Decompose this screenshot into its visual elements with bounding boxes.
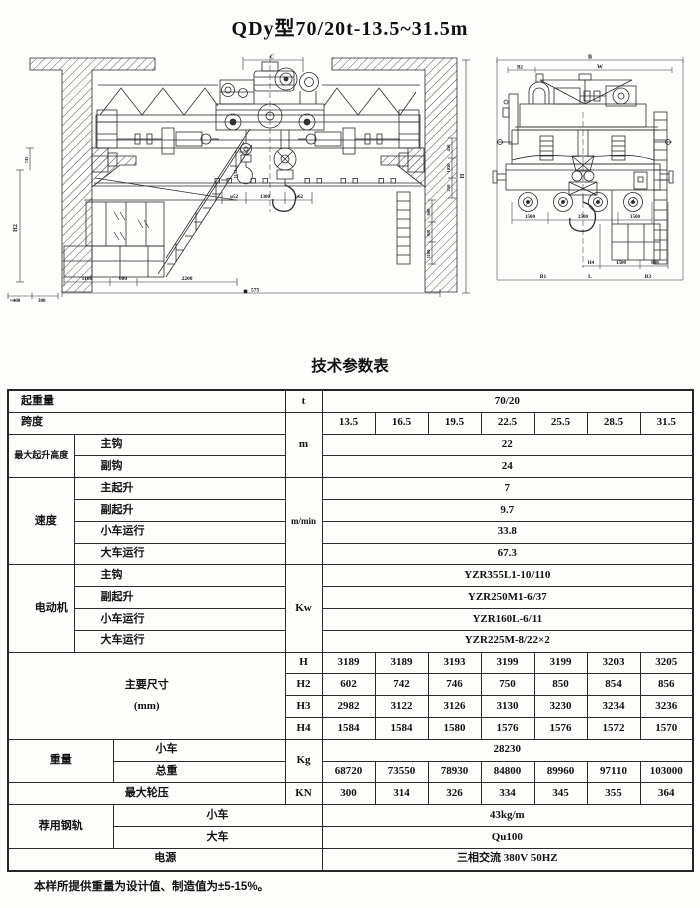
technical-drawing: C 1134 φ52 1300 φ62 1100 600 2200 575 ≈4…: [0, 52, 700, 304]
wheel-load-value: 334: [481, 783, 534, 805]
dim-value: 1576: [534, 717, 587, 739]
span-value: 22.5: [481, 412, 534, 434]
row-label-rail: 荐用钢轨: [8, 805, 113, 849]
dim-row-h3: H3: [285, 696, 322, 718]
sub-label-trolley-travel: 小车运行: [74, 521, 285, 543]
dim-label-2200: 2200: [182, 276, 193, 282]
weight-value: 97110: [587, 761, 640, 783]
value-rail-trolley: 43kg/m: [322, 805, 693, 827]
row-label-motor: 电动机: [8, 565, 74, 652]
row-label-dimensions: 主要尺寸 (mm): [8, 652, 285, 739]
side-trolley: [503, 74, 658, 144]
dim-label-h2: H2: [13, 224, 19, 232]
unit-kw: Kw: [285, 565, 322, 652]
wall-ladder: [397, 192, 410, 264]
dim-value: 850: [534, 674, 587, 696]
sub-label-rail-trolley: 小车: [113, 805, 322, 827]
dim-label-b2: B2: [517, 66, 523, 71]
document-page: QDy型70/20t-13.5~31.5m: [0, 0, 700, 908]
side-dimensions: [497, 57, 683, 280]
dim-value: 1576: [481, 717, 534, 739]
dim-value: 602: [322, 674, 375, 696]
value-speed-main: 7: [322, 478, 693, 500]
dim-value: 1580: [428, 717, 481, 739]
aux-hook: [238, 130, 253, 184]
dim-label-s250: 250: [446, 184, 451, 192]
dim-label-w: W: [597, 65, 603, 71]
dim-value: 1584: [322, 717, 375, 739]
sub-label-motor-main: 主钩: [74, 565, 285, 587]
dimensions-label-text: 主要尺寸: [9, 679, 285, 691]
dim-value: 3199: [481, 652, 534, 674]
dim-label-b3: B3: [645, 274, 652, 280]
weight-value: 103000: [640, 761, 693, 783]
dim-value: 3230: [534, 696, 587, 718]
sub-label-motor-crane: 大车运行: [74, 630, 285, 652]
dim-label-r920: 920: [426, 229, 431, 237]
value-main-hook-height: 22: [322, 434, 693, 456]
dim-value: 3193: [428, 652, 481, 674]
value-speed-aux: 9.7: [322, 499, 693, 521]
stairs: [158, 129, 252, 277]
parameters-table: 起重量 t 70/20 跨度 m 13.5 16.5 19.5 22.5 25.…: [7, 389, 694, 872]
dim-value: 3234: [587, 696, 640, 718]
side-ladder-platform: [612, 112, 667, 264]
dim-label-300: 300: [38, 299, 46, 304]
dim-value: 3189: [375, 652, 428, 674]
dim-value: 1572: [587, 717, 640, 739]
dim-label-600: 600: [119, 276, 128, 282]
row-label-lifting-capacity: 起重量: [8, 390, 285, 412]
speed-label-text: 速度: [35, 514, 48, 528]
dim-label-r600: 600: [426, 208, 431, 216]
dim-label-m2500: 2500: [578, 215, 589, 220]
dimensions-unit-text: (mm): [9, 700, 285, 712]
row-label-weight: 重量: [8, 739, 113, 783]
sub-label-aux-hook: 副钩: [74, 456, 285, 478]
dim-label-s450: 450: [446, 144, 451, 152]
sub-label-main-hook: 主钩: [74, 434, 285, 456]
dim-value: 3205: [640, 652, 693, 674]
sub-label-crane-travel: 大车运行: [74, 543, 285, 565]
dim-label-m1500a: 1500: [525, 215, 536, 220]
dim-label-r1100: 1100: [426, 249, 431, 259]
side-view: B W B2 1500 2500 1500 H4 1500 800 B1 L B…: [493, 55, 683, 281]
dim-value: 854: [587, 674, 640, 696]
dim-label-l: L: [588, 274, 592, 280]
footnote: 本样所提供重量为设计值、制造值为±5-15%。: [34, 878, 269, 894]
dim-value: 3122: [375, 696, 428, 718]
dim-label-400: ≈400: [10, 299, 21, 304]
wheel-load-value: 314: [375, 783, 428, 805]
wheel-load-value: 355: [587, 783, 640, 805]
dim-label-rail-3: φ62: [295, 195, 304, 200]
dim-value: 3199: [534, 652, 587, 674]
unit-kg: Kg: [285, 739, 322, 783]
wheel-load-value: 345: [534, 783, 587, 805]
dim-value: 742: [375, 674, 428, 696]
page-title: QDy型70/20t-13.5~31.5m: [0, 12, 700, 41]
sub-label-motor-trolley: 小车运行: [74, 608, 285, 630]
dim-label-rail-1: φ52: [230, 195, 239, 200]
weight-value: 78930: [428, 761, 481, 783]
dim-label-l800: 800: [651, 261, 659, 266]
value-weight-trolley: 28230: [322, 739, 693, 761]
side-girder: [497, 130, 672, 171]
wheel-load-value: 326: [428, 783, 481, 805]
motor-label-text: 电动机: [35, 601, 48, 615]
wheel-load-value: 300: [322, 783, 375, 805]
unit-t: t: [285, 390, 322, 412]
dim-value: 3236: [640, 696, 693, 718]
row-label-span: 跨度: [8, 412, 285, 434]
dim-label-rail-2: 1300: [260, 195, 271, 200]
value-aux-hook-height: 24: [322, 456, 693, 478]
table-title: 技术参数表: [0, 354, 700, 376]
dim-label-l1500: 1500: [616, 261, 627, 266]
unit-kn: KN: [285, 783, 322, 805]
bridge-girder: [94, 85, 422, 186]
dim-label-m1500b: 1500: [630, 215, 641, 220]
weight-value: 73550: [375, 761, 428, 783]
dim-label-745: 745: [24, 156, 29, 164]
dim-row-h: H: [285, 652, 322, 674]
wall-right: [332, 58, 457, 292]
dim-label-aux: 1134: [233, 169, 238, 179]
row-label-lifting-height: 最大起升高度: [8, 434, 74, 478]
dim-label-span: 575: [251, 288, 260, 294]
sub-label-motor-aux: 副起升: [74, 587, 285, 609]
value-speed-crane: 67.3: [322, 543, 693, 565]
trolley: [216, 56, 324, 212]
dim-value: 1584: [375, 717, 428, 739]
span-value: 19.5: [428, 412, 481, 434]
sub-label-main-hoist: 主起升: [74, 478, 285, 500]
dim-label-c: C: [270, 55, 274, 61]
weight-value: 68720: [322, 761, 375, 783]
unit-m: m: [285, 412, 322, 477]
span-value: 28.5: [587, 412, 640, 434]
span-value: 13.5: [322, 412, 375, 434]
dim-label-1100: 1100: [82, 276, 93, 282]
dim-value: 3130: [481, 696, 534, 718]
value-motor-main: YZR355L1-10/110: [322, 565, 693, 587]
dim-value: 3126: [428, 696, 481, 718]
dim-value: 3203: [587, 652, 640, 674]
dim-value: 750: [481, 674, 534, 696]
dim-label-s1050: 1050: [446, 163, 451, 173]
span-value: 25.5: [534, 412, 587, 434]
dim-row-h4: H4: [285, 717, 322, 739]
row-label-wheel-load: 最大轮压: [8, 783, 285, 805]
dim-label-b: B: [588, 55, 592, 61]
sub-label-aux-hoist: 副起升: [74, 499, 285, 521]
dim-value: 1570: [640, 717, 693, 739]
span-value: 31.5: [640, 412, 693, 434]
sub-label-weight-total: 总重: [113, 761, 285, 783]
value-motor-aux: YZR250M1-6/37: [322, 587, 693, 609]
value-speed-trolley: 33.8: [322, 521, 693, 543]
sub-label-weight-trolley: 小车: [113, 739, 285, 761]
dim-row-h2: H2: [285, 674, 322, 696]
weight-value: 89960: [534, 761, 587, 783]
value-motor-trolley: YZR160L-6/11: [322, 608, 693, 630]
value-motor-crane: YZR225M-8/22×2: [322, 630, 693, 652]
dim-value: 746: [428, 674, 481, 696]
dim-label-b1: B1: [540, 274, 547, 280]
span-value: 16.5: [375, 412, 428, 434]
front-view: C 1134 φ52 1300 φ62 1100 600 2200 575 ≈4…: [8, 55, 470, 305]
dim-value: 3189: [322, 652, 375, 674]
main-hook: [273, 130, 296, 211]
unit-m-min: m/min: [285, 478, 322, 565]
dim-value: 856: [640, 674, 693, 696]
dim-label-h4: H4: [588, 261, 595, 266]
value-lifting-capacity: 70/20: [322, 390, 693, 412]
row-label-speed: 速度: [8, 478, 74, 565]
dim-label-h: H: [460, 173, 466, 178]
row-label-power: 电源: [8, 848, 322, 870]
weight-value: 84800: [481, 761, 534, 783]
sub-label-rail-crane: 大车: [113, 826, 322, 848]
dim-value: 2982: [322, 696, 375, 718]
wheel-load-value: 364: [640, 783, 693, 805]
value-power: 三相交流 380V 50HZ: [322, 848, 693, 870]
value-rail-crane: Qu100: [322, 826, 693, 848]
